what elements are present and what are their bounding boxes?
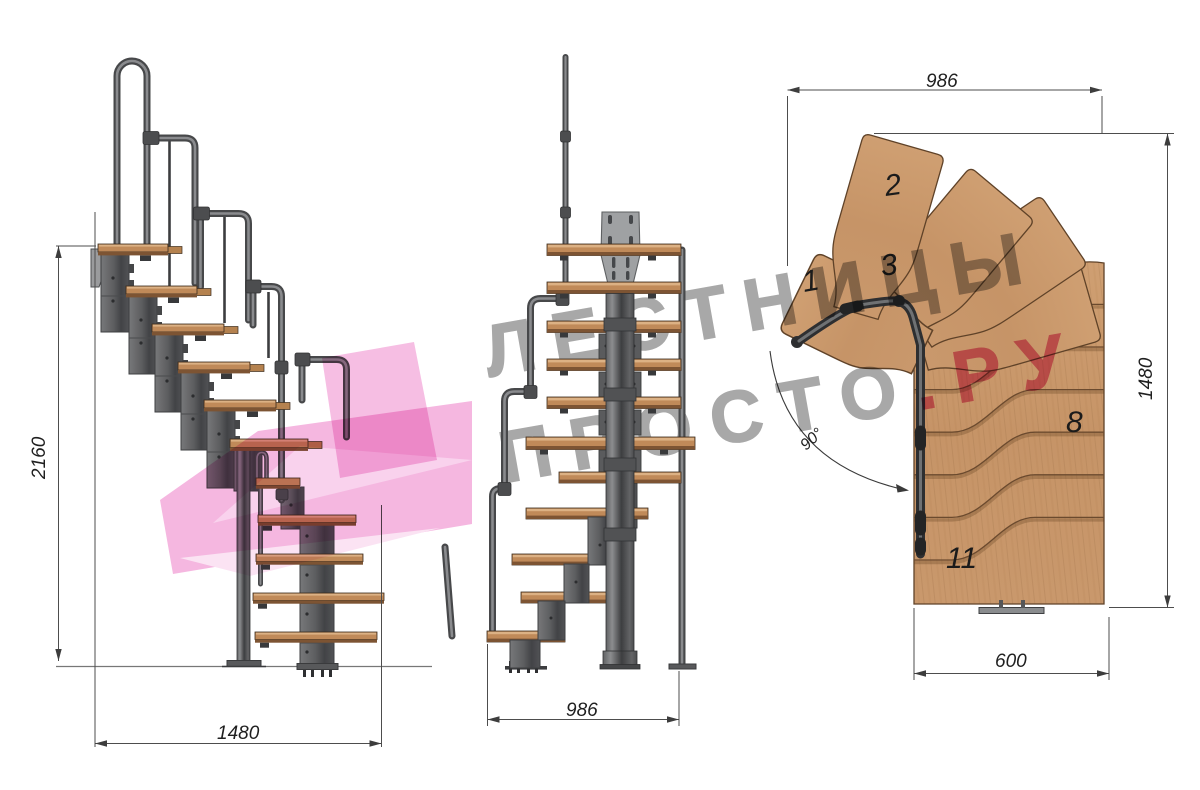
svg-text:1480: 1480 [1136, 357, 1157, 400]
svg-text:600: 600 [995, 651, 1027, 672]
svg-text:986: 986 [566, 700, 598, 721]
svg-text:986: 986 [926, 71, 958, 92]
svg-text:8: 8 [1066, 406, 1083, 439]
svg-text:2160: 2160 [29, 436, 50, 480]
svg-text:1480: 1480 [217, 723, 260, 744]
svg-text:11: 11 [946, 542, 977, 575]
